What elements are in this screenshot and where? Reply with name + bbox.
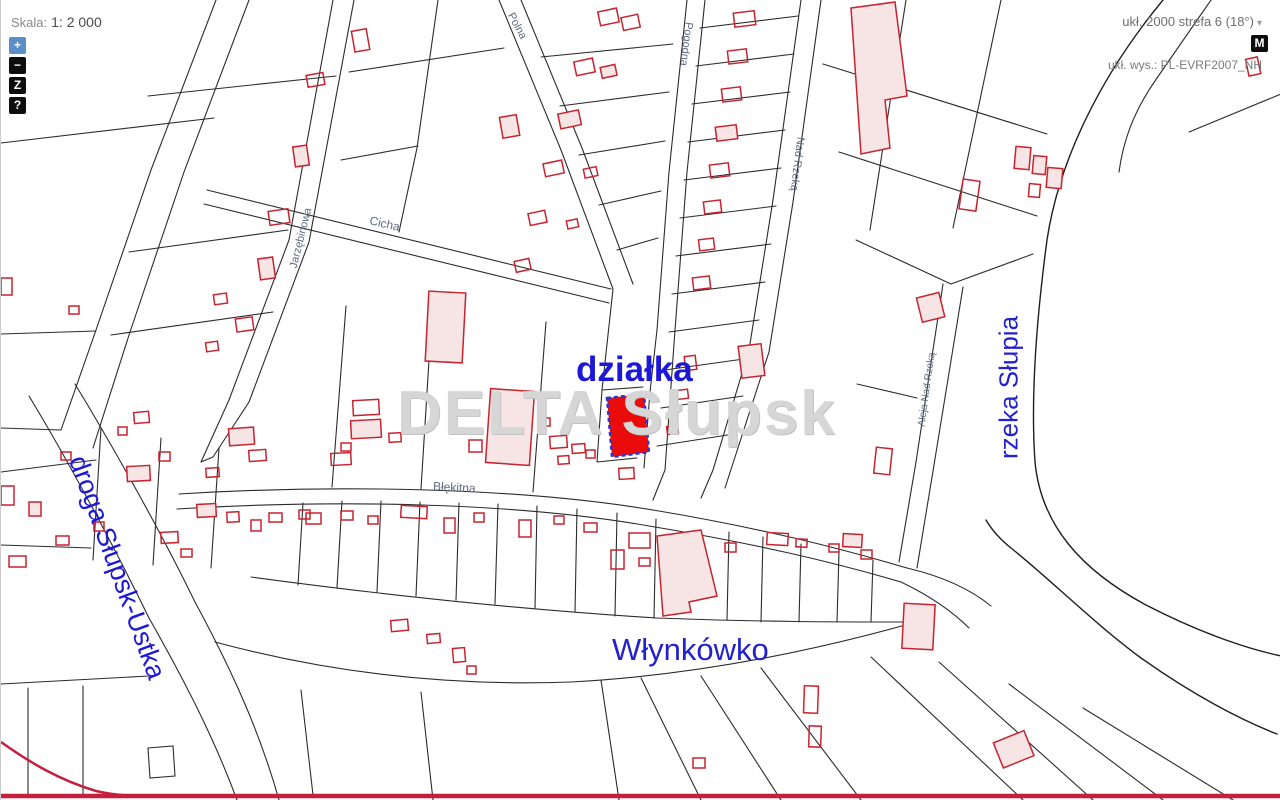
m-button[interactable]: M <box>1251 35 1268 52</box>
map-canvas[interactable] <box>1 0 1280 800</box>
river-left-bank <box>1034 0 1280 656</box>
zoom-box-button[interactable]: Z <box>9 77 26 94</box>
scale-label: Skala: <box>11 15 47 30</box>
zoom-out-button[interactable]: − <box>9 57 26 74</box>
zoom-in-button[interactable]: + <box>9 37 26 54</box>
scale-indicator: Skala:1: 2 000 <box>11 14 102 30</box>
river-banks <box>986 0 1280 734</box>
height-system-label: ukł. wys.: PL-EVRF2007_NH <box>1108 58 1262 72</box>
boundary-lines <box>1 742 1280 796</box>
crs-label: ukł. 2000 strefa 6 (18°) <box>1122 14 1254 29</box>
buildings-layer <box>1 2 1261 768</box>
map-toolbar: + − Z ? <box>9 37 26 114</box>
crs-selector[interactable]: ukł. 2000 strefa 6 (18°)▾ <box>1122 14 1262 29</box>
map-viewport[interactable]: DELTA Słupsk działka Włynkówko rzeka Słu… <box>0 0 1280 800</box>
scale-value: 1: 2 000 <box>51 14 102 30</box>
highlighted-parcel[interactable] <box>607 394 649 457</box>
help-button[interactable]: ? <box>9 97 26 114</box>
river-right-bank <box>986 520 1277 734</box>
chevron-down-icon: ▾ <box>1257 18 1262 29</box>
